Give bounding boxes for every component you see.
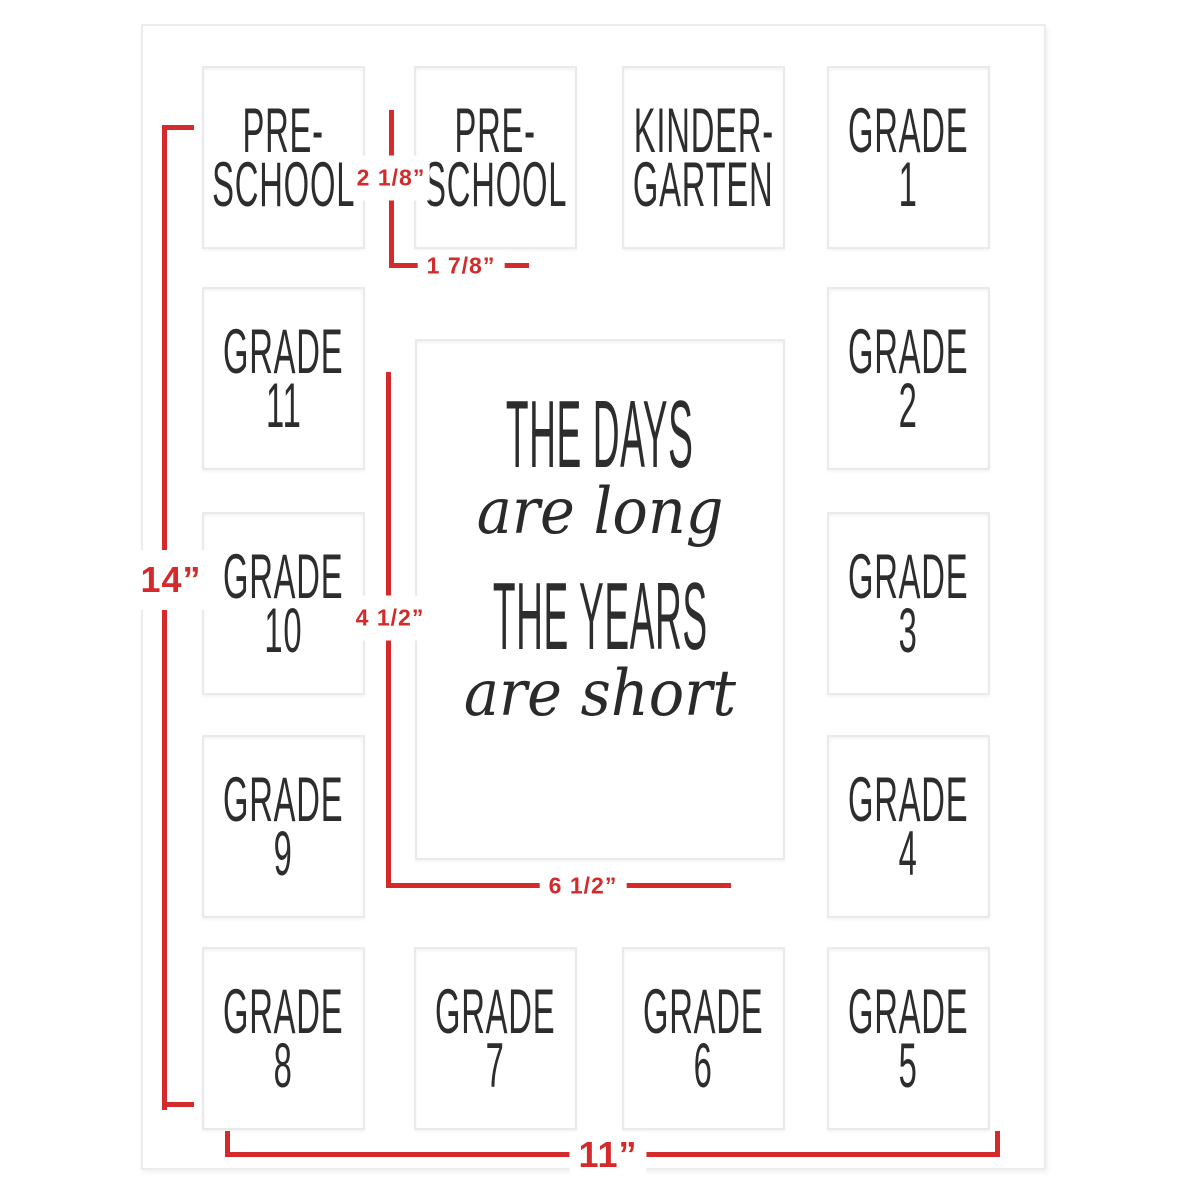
opening-label: SCHOOL [424,144,567,225]
opening-label: 5 [899,1025,918,1106]
opening-grade-1: GRADE 1 [827,66,990,249]
opening-label: 3 [899,590,918,671]
opening-label: 11 [266,365,302,446]
opening-kindergarten: KINDER- GARTEN [622,66,785,249]
opening-label: 9 [274,813,293,894]
opening-grade-5: GRADE 5 [827,947,990,1130]
opening-grade-10: GRADE 10 [202,512,365,695]
dimension-line-mat-height [162,125,167,1110]
dimension-tick-height-bottom [162,1102,194,1107]
dimension-tick-width-right [995,1131,1000,1157]
photo-mat-dimension-diagram: PRE- SCHOOL PRE- SCHOOL KINDER- GARTEN G… [0,0,1200,1200]
opening-label: 2 [899,365,918,446]
opening-preschool-1: PRE- SCHOOL [202,66,365,249]
quote-script-line: are short [464,653,736,735]
opening-grade-6: GRADE 6 [622,947,785,1130]
opening-label: 4 [899,813,918,894]
dim-label-mat-height: 14” [136,550,205,610]
opening-grade-9: GRADE 9 [202,735,365,918]
opening-label: GARTEN [633,144,774,225]
opening-grade-7: GRADE 7 [414,947,577,1130]
dim-label-mat-width: 11” [569,1132,646,1178]
quote-script-line: are long [477,471,724,553]
dim-label-small-opening-width: 1 7/8” [418,251,505,282]
opening-grade-3: GRADE 3 [827,512,990,695]
opening-label: 8 [274,1025,293,1106]
opening-label: 1 [899,144,918,225]
dim-label-center-opening-height: 6 1/2” [540,871,627,902]
quote-stanza-1: THE DAYS are long [438,397,761,553]
opening-grade-4: GRADE 4 [827,735,990,918]
photo-mat-board: PRE- SCHOOL PRE- SCHOOL KINDER- GARTEN G… [141,24,1046,1170]
opening-label: 10 [264,590,302,671]
opening-grade-2: GRADE 2 [827,287,990,470]
opening-preschool-2: PRE- SCHOOL [414,66,577,249]
opening-label: 6 [694,1025,713,1106]
dim-label-small-opening-height: 2 1/8” [353,156,430,201]
quote-stanza-2: THE YEARS are short [415,579,786,735]
opening-label: SCHOOL [212,144,355,225]
opening-grade-8: GRADE 8 [202,947,365,1130]
dim-label-center-opening-width: 4 1/2” [352,596,429,641]
opening-center-quote: THE DAYS are long THE YEARS are short [415,339,785,860]
opening-grade-11: GRADE 11 [202,287,365,470]
opening-label: 7 [486,1025,505,1106]
